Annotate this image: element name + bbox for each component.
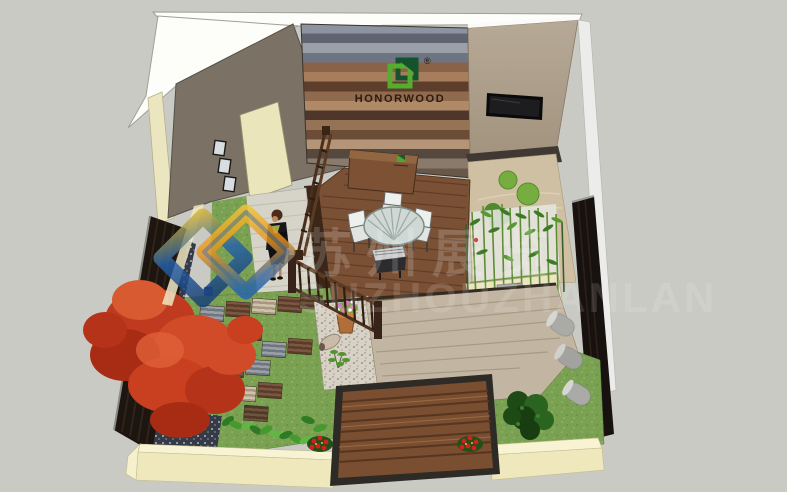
- garden-render: ® HONORWOOD: [0, 0, 787, 492]
- registered-mark: ®: [424, 56, 431, 66]
- wall-tv: [486, 93, 543, 120]
- watermark-latin-text: SUZHOUZHANLAN: [298, 274, 717, 321]
- wooden-step-platform: [330, 374, 500, 486]
- honorwood-wordmark: HONORWOOD: [355, 93, 446, 105]
- render-canvas: ® HONORWOOD: [0, 0, 787, 492]
- wall-counter: [348, 150, 418, 194]
